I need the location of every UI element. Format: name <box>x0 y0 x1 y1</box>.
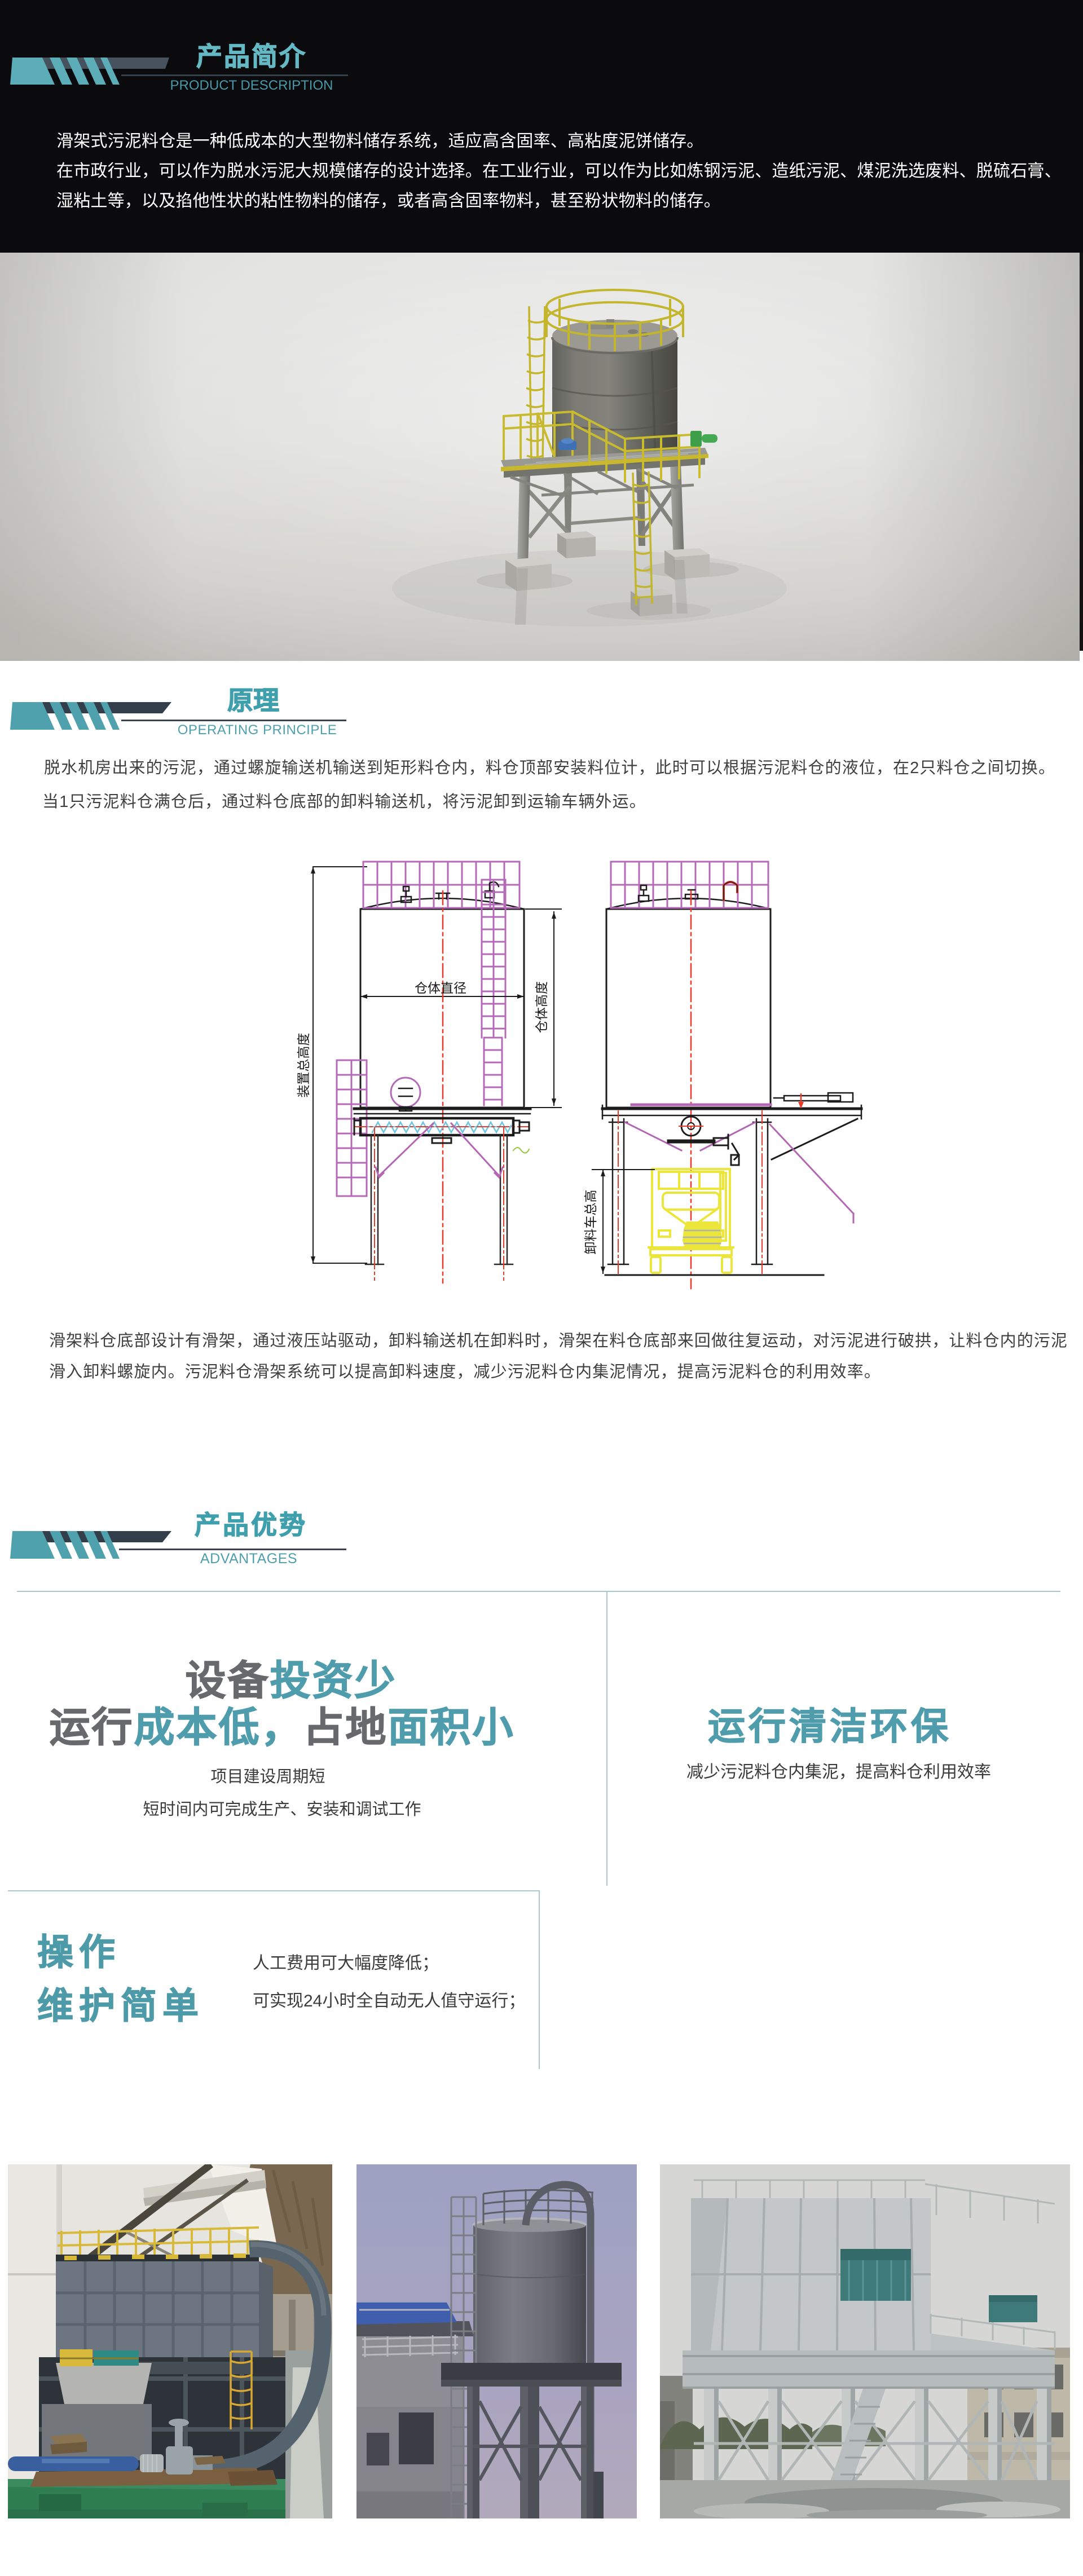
svg-text:卸料车总高: 卸料车总高 <box>583 1190 598 1255</box>
svg-text:仓体直径: 仓体直径 <box>415 981 466 995</box>
svg-text:仓体高度: 仓体高度 <box>534 981 549 1033</box>
svg-text:装置总高度: 装置总高度 <box>296 1033 311 1098</box>
